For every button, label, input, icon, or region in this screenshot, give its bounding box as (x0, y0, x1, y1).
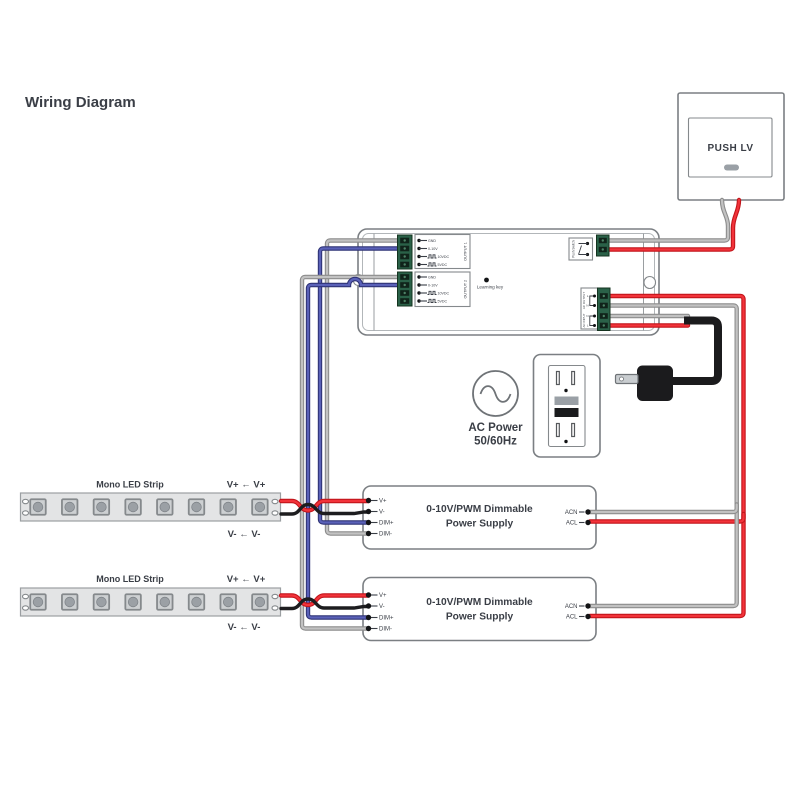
solder-pad (272, 594, 278, 598)
solder-pad (23, 594, 29, 598)
push-lv-label: PUSH LV (707, 143, 753, 154)
psu2-body (363, 578, 596, 641)
ac-pin-n1: N (586, 304, 588, 308)
led (94, 499, 110, 515)
psu1-pin-acl: ACL (566, 521, 578, 527)
wire-strip2-vplus (281, 596, 369, 606)
ac-plug[interactable] (616, 366, 674, 402)
psu1-pin-dimminus: DIM- (379, 532, 392, 538)
page-title: Wiring Diagram (25, 94, 136, 111)
led-strip-1: Mono LED Strip V+ ← V+ V- ← V- (21, 480, 281, 541)
psu2-pin-vminus: V- (379, 604, 385, 610)
plug-body[interactable] (637, 366, 673, 402)
output2-pin-5vdc: 5VDC (438, 299, 448, 303)
push-terminal-label: Push Switch (572, 240, 576, 258)
led-strip-2: Mono LED Strip V+ ← V+ V- ← V- (21, 574, 281, 633)
led (220, 499, 236, 515)
output1-pin-5vdc: 5VDC (438, 263, 448, 267)
strip1-label: Mono LED Strip (96, 480, 164, 490)
outlet-slot (572, 372, 575, 385)
ac-freq-label: 50/60Hz (474, 436, 517, 448)
psu1-pin-dimplus: DIM+ (379, 521, 394, 527)
output2-pin-0-10v: 0-10V (428, 283, 438, 287)
strip2-vplus-note: V+ ← V+ (227, 574, 266, 585)
strip2-vminus-note: V- ← V- (228, 622, 261, 633)
output2-pin-10vdc: 10VDC (438, 291, 450, 295)
psu2-title-line2: Power Supply (446, 612, 514, 623)
solder-pad (23, 499, 29, 503)
led (94, 594, 110, 610)
psu2-pin-acn: ACN (565, 604, 578, 610)
power-supply-1: 0-10V/PWM Dimmable Power Supply V+ V- DI… (363, 486, 596, 549)
psu2-pin-dimminus: DIM- (379, 627, 392, 633)
psu2-pin-acl: ACL (566, 615, 578, 621)
psu1-pin-vminus: V- (379, 510, 385, 516)
controller-right-mount-slot (644, 277, 656, 289)
psu2-pin-dimplus: DIM+ (379, 616, 394, 622)
learning-key-label: Learning key (477, 285, 504, 290)
psu1-pin-acn: ACN (565, 510, 578, 516)
outlet-slot (557, 372, 560, 385)
output2-name: OUTPUT 2 (464, 280, 468, 299)
terminal-block-output1 (398, 235, 413, 269)
controller-push-switch-box: Push Switch (569, 238, 593, 260)
wiring-diagram-page: Wiring Diagram PUSH LV GND 0-10V 10VDC 5… (0, 0, 800, 800)
led (252, 499, 268, 515)
outlet-slot (557, 424, 560, 437)
output1-pin-10vdc: 10VDC (438, 255, 450, 259)
solder-pad (272, 511, 278, 515)
terminal-block-output2 (398, 272, 413, 306)
led (189, 594, 205, 610)
power-supply-2: 0-10V/PWM Dimmable Power Supply V+ V- DI… (363, 578, 596, 641)
solder-pad (23, 511, 29, 515)
strip1-vplus-note: V+ ← V+ (227, 480, 266, 491)
wire-strip1-vplus (281, 501, 369, 511)
solder-pad (272, 499, 278, 503)
output1-pin-gnd: GND (428, 239, 436, 243)
controller-output2-box: GND 0-10V 10VDC 5VDC OUTPUT 2 (415, 272, 470, 307)
solder-pad (272, 606, 278, 610)
push-lv-switch: PUSH LV (678, 93, 784, 200)
psu2-pin-vplus: V+ (379, 593, 387, 599)
controller-ac-box: AC OUTPUT AC INPUT L N N L (581, 288, 598, 329)
psu2-title-line1: 0-10V/PWM Dimmable (426, 597, 533, 608)
psu1-title-line1: 0-10V/PWM Dimmable (426, 504, 533, 515)
wiring-diagram-svg: Wiring Diagram PUSH LV GND 0-10V 10VDC 5… (0, 0, 800, 800)
ac-output-label: AC OUTPUT (582, 292, 586, 310)
controller-output1-box: GND 0-10V 10VDC 5VDC OUTPUT 1 (415, 235, 470, 269)
ac-input-label: AC INPUT (582, 313, 586, 327)
led (125, 499, 141, 515)
strip1-body (21, 493, 281, 521)
led (125, 594, 141, 610)
psu1-title-line2: Power Supply (446, 519, 514, 530)
plug-prong (616, 375, 639, 384)
output1-name: OUTPUT 1 (464, 242, 468, 261)
strip2-body (21, 588, 281, 616)
led (189, 499, 205, 515)
outlet-reset-button[interactable] (555, 397, 579, 406)
push-lv-indicator (724, 165, 739, 171)
solder-pad (23, 606, 29, 610)
outlet-face (549, 366, 586, 447)
strip2-label: Mono LED Strip (96, 574, 164, 584)
led (30, 499, 46, 515)
outlet-slot (572, 424, 575, 437)
learning-key-button[interactable] (484, 278, 489, 283)
wall-outlet (534, 355, 601, 458)
led (252, 594, 268, 610)
led (30, 594, 46, 610)
strip1-vminus-note: V- ← V- (228, 529, 261, 540)
terminal-block-push-switch (597, 235, 610, 256)
led (62, 499, 78, 515)
plug-power-cord (670, 321, 718, 382)
ac-pin-n2: N (586, 314, 588, 318)
wire-strip1-vminus (281, 505, 369, 515)
output1-pin-0-10v: 0-10V (428, 247, 438, 251)
ac-power-source: AC Power 50/60Hz (468, 371, 523, 448)
led (157, 499, 173, 515)
led (157, 594, 173, 610)
psu1-pin-vplus: V+ (379, 499, 387, 505)
wire-strip2-vminus (281, 599, 369, 609)
terminal-block-ac (598, 288, 611, 331)
outlet-ground-hole (564, 389, 567, 392)
psu1-body (363, 486, 596, 549)
led (62, 594, 78, 610)
outlet-ground-hole (564, 440, 567, 443)
led (220, 594, 236, 610)
ac-power-label: AC Power (468, 422, 523, 434)
outlet-test-button[interactable] (555, 408, 579, 417)
output2-pin-gnd: GND (428, 275, 436, 279)
plug-prong-hole (620, 377, 624, 381)
